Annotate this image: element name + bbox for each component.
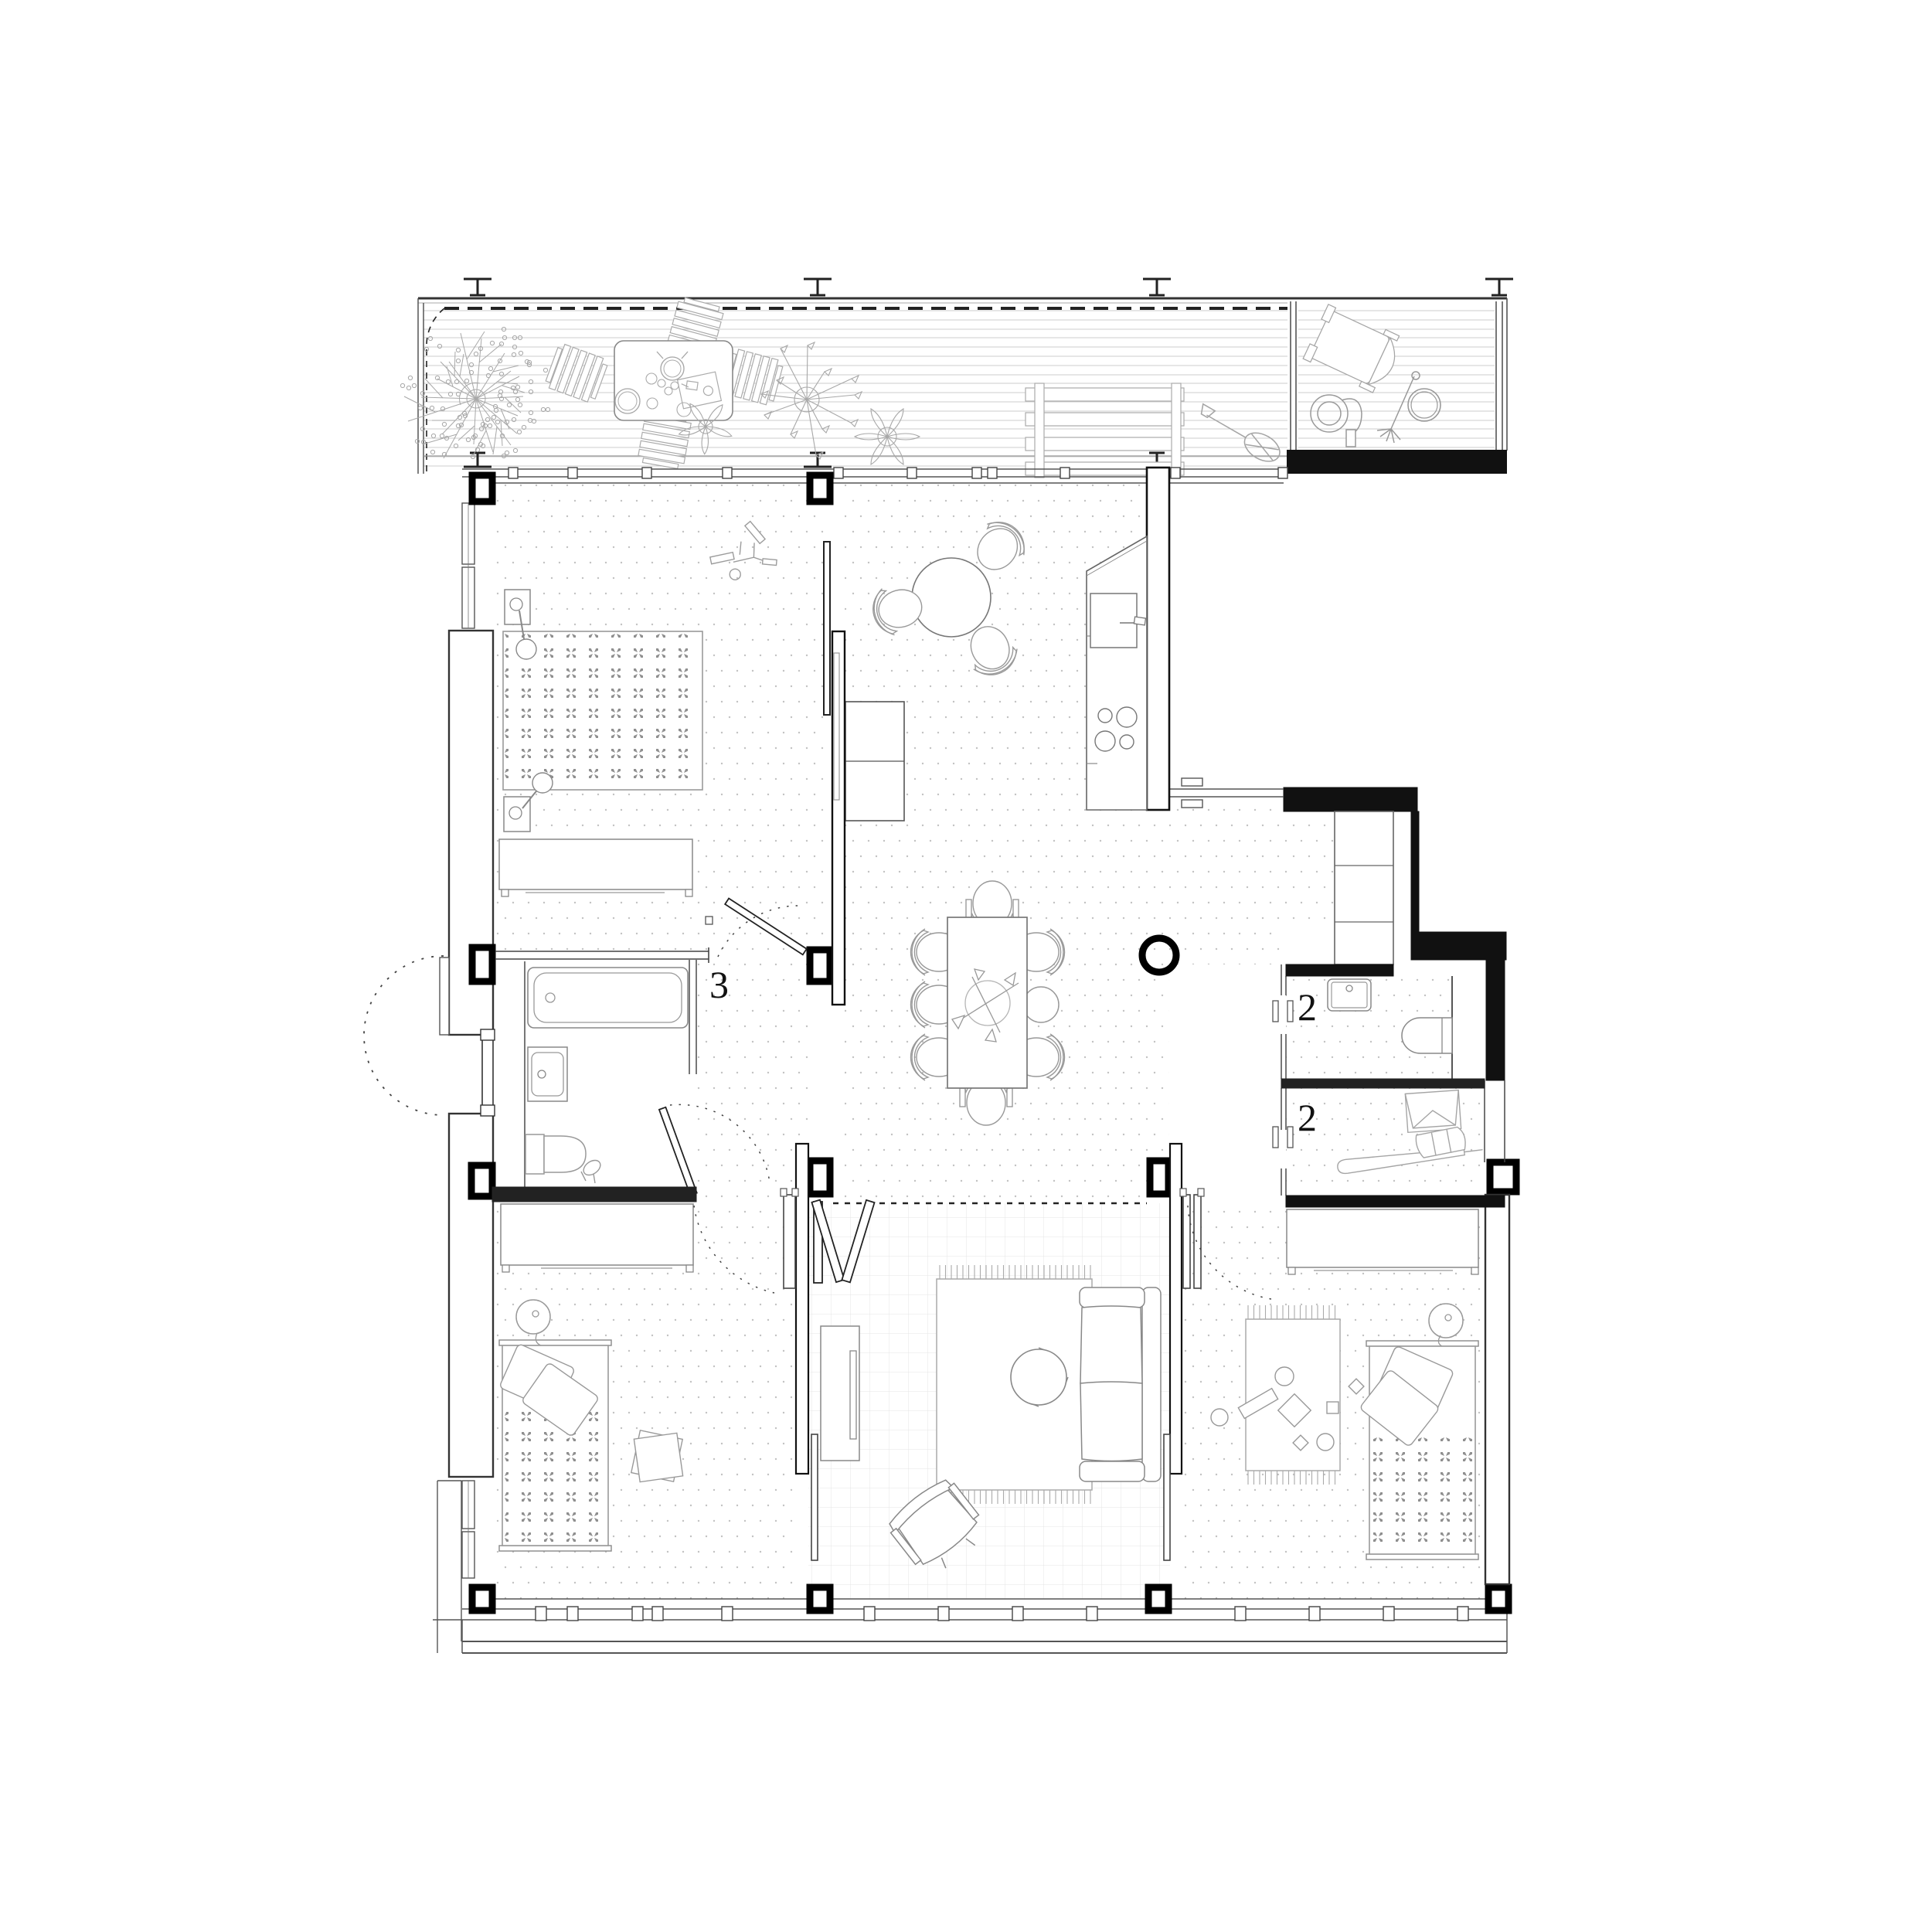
- svg-text:2: 2: [1298, 985, 1317, 1029]
- svg-text:2: 2: [1298, 1096, 1317, 1139]
- svg-text:3: 3: [709, 963, 729, 1006]
